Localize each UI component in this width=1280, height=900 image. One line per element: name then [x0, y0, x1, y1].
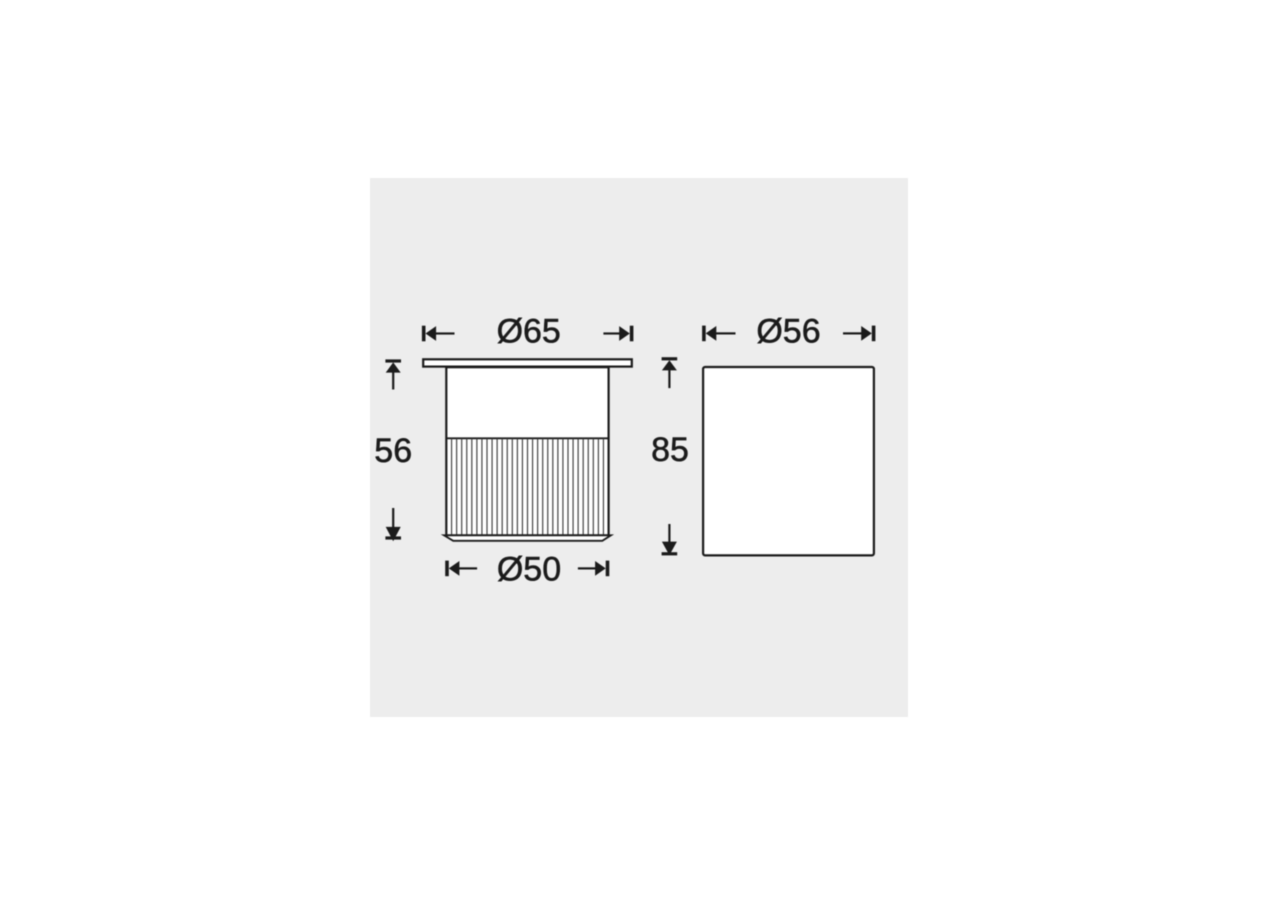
svg-text:56: 56 [374, 432, 412, 470]
svg-text:Ø56: Ø56 [756, 313, 820, 351]
svg-text:85: 85 [651, 431, 689, 469]
svg-text:Ø50: Ø50 [497, 550, 561, 588]
svg-text:Ø65: Ø65 [497, 313, 561, 351]
